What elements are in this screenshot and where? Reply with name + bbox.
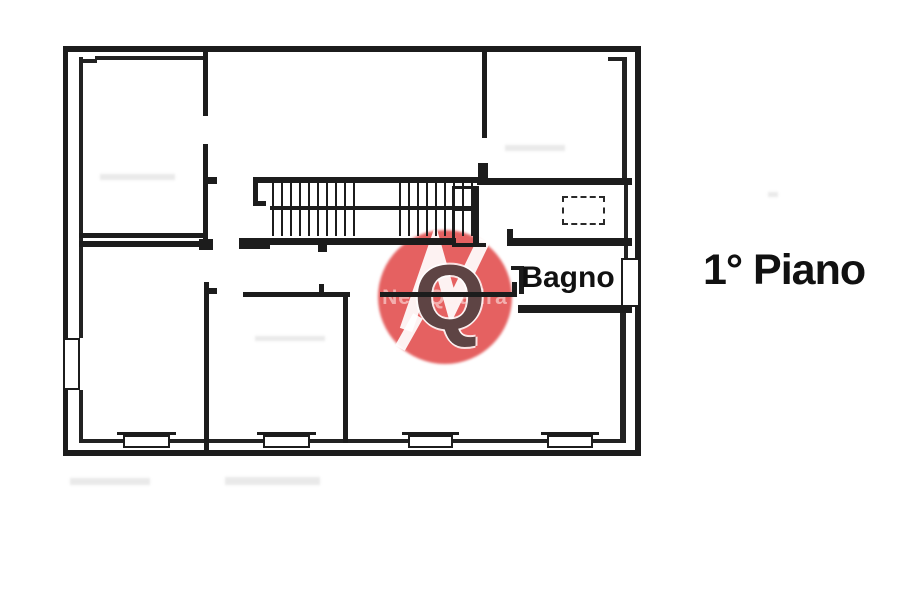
bathroom-wall-bottom [518,305,632,313]
wall-segment [380,292,517,297]
outer-wall-top [65,46,638,52]
scan-smudge [225,477,320,485]
window [547,435,593,448]
wall-segment [343,296,348,443]
stair-well-base [452,243,486,247]
wall-tick [318,245,327,252]
wall-top-left-room [203,52,208,116]
floorplan-scan: NewQuadra Q [0,0,900,600]
wall-stub [209,288,217,294]
wall-segment [482,52,487,138]
window-left-wall [63,338,80,390]
wall-tick [319,284,324,293]
wall-foot [239,238,270,249]
fixture-dashed-box [562,196,605,225]
wall-segment [243,292,350,297]
wall-segment [95,56,205,60]
scan-smudge [768,192,778,197]
outer-wall-left [63,46,68,456]
stair-well-cap [452,186,479,189]
stair-well-side [473,186,479,246]
watermark-logo: NewQuadra Q [378,230,512,364]
wall-segment [79,439,125,443]
wall-segment [81,59,97,63]
wall-segment [620,307,626,443]
wall-segment [203,144,208,242]
window [263,435,310,448]
floor-label: 1° Piano [703,246,865,295]
bathroom-window [621,258,640,307]
wall-stub [208,177,217,184]
window [408,435,453,448]
watermark-q-letter: Q [414,252,486,344]
outer-wall-bottom [63,450,641,456]
scan-smudge [255,336,325,341]
wall-segment [170,439,265,443]
window [123,435,170,448]
wall-segment [624,185,628,258]
stair-mid-rail [270,206,477,210]
wall-stub [507,229,513,240]
wall-segment [477,178,632,185]
scan-smudge [70,478,150,485]
wall-segment [79,57,83,338]
wall-segment [204,282,209,450]
outer-wall-right [635,46,641,456]
stair-well-mid [452,208,479,211]
wall-segment [79,390,83,442]
scan-smudge [505,145,565,151]
wall-segment [453,439,549,443]
wall-segment [310,439,410,443]
wall-segment [79,233,203,238]
wall-segment [622,57,627,180]
wall-segment [608,57,624,61]
scan-smudge [100,174,175,180]
bathroom-wall-top [507,238,632,246]
stair-well-side [452,186,455,246]
bagno-label: Bagno [516,261,620,295]
wall-segment [591,439,623,443]
stair-bottom-rail [239,238,456,245]
stair-rail-hook [253,201,266,206]
wall-segment [79,241,212,247]
